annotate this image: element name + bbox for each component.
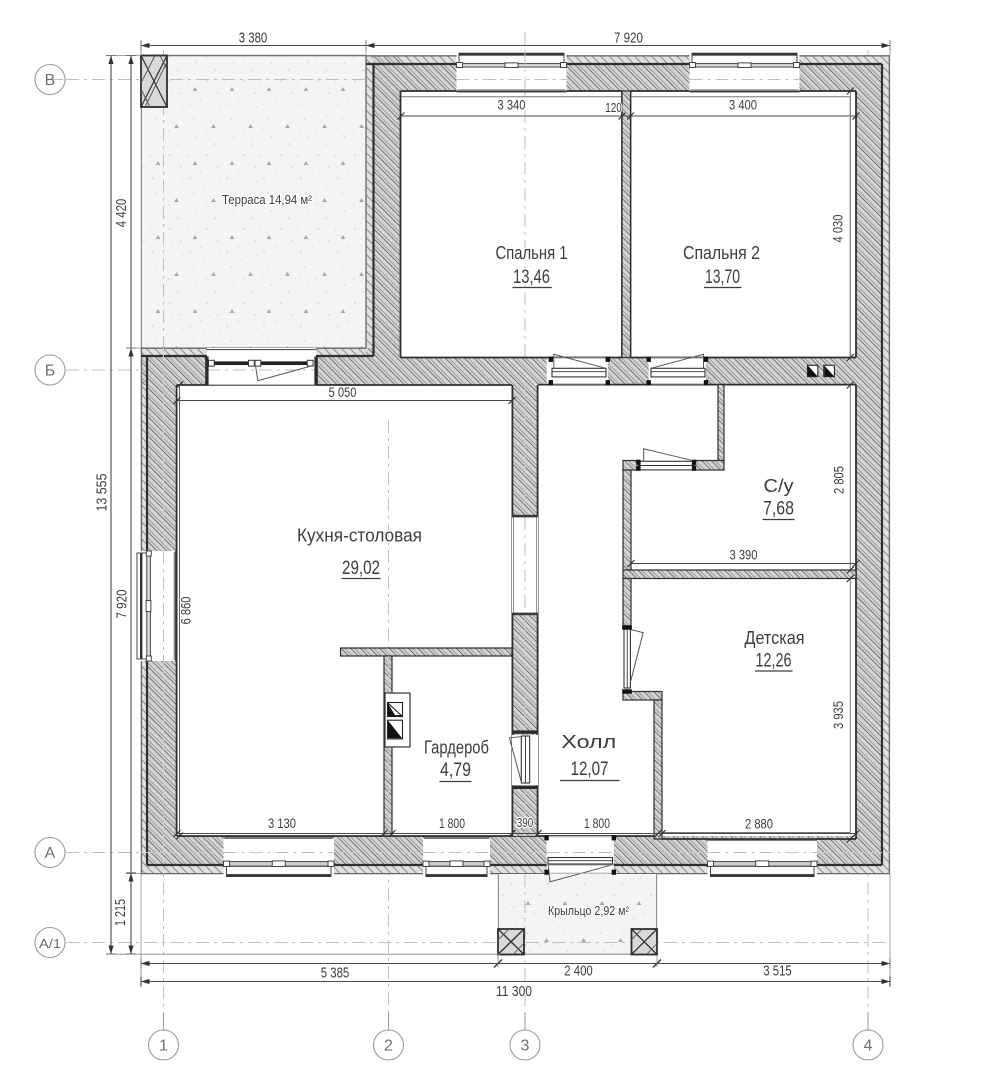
svg-text:4 030: 4 030 — [831, 215, 846, 243]
svg-text:4,79: 4,79 — [440, 760, 471, 781]
svg-text:4: 4 — [864, 1038, 873, 1055]
svg-text:1 215: 1 215 — [113, 899, 129, 926]
svg-text:3 130: 3 130 — [268, 816, 296, 831]
svg-text:12,26: 12,26 — [756, 651, 792, 672]
svg-text:С/у: С/у — [764, 476, 794, 496]
svg-text:11 300: 11 300 — [496, 984, 532, 1000]
svg-text:2 880: 2 880 — [745, 817, 773, 832]
svg-text:7 920: 7 920 — [614, 31, 643, 47]
svg-text:Крыльцо 2,92 м²: Крыльцо 2,92 м² — [548, 903, 630, 918]
svg-text:А: А — [45, 845, 56, 862]
svg-text:390: 390 — [517, 815, 534, 830]
svg-text:Спальня 1: Спальня 1 — [496, 243, 568, 263]
svg-text:3 380: 3 380 — [239, 31, 268, 47]
svg-text:5 050: 5 050 — [329, 385, 357, 400]
svg-text:Кухня-столовая: Кухня-столовая — [297, 526, 422, 546]
svg-text:3 515: 3 515 — [763, 964, 792, 980]
svg-text:3 340: 3 340 — [498, 98, 526, 113]
svg-text:12,07: 12,07 — [571, 759, 609, 780]
svg-text:Холл: Холл — [561, 732, 616, 752]
svg-text:1 800: 1 800 — [584, 816, 610, 831]
svg-text:5 385: 5 385 — [321, 966, 350, 982]
svg-text:Спальня 2: Спальня 2 — [683, 243, 760, 263]
svg-text:2 400: 2 400 — [564, 964, 593, 980]
svg-text:3 390: 3 390 — [730, 548, 758, 563]
svg-text:Гардероб: Гардероб — [424, 738, 489, 758]
svg-text:Терраса 14,94 м²: Терраса 14,94 м² — [222, 192, 313, 207]
svg-text:2 805: 2 805 — [832, 466, 847, 494]
svg-text:А/1: А/1 — [39, 936, 61, 951]
svg-text:6 860: 6 860 — [179, 597, 194, 625]
svg-text:1 800: 1 800 — [439, 816, 465, 831]
svg-text:7 920: 7 920 — [115, 590, 131, 619]
svg-text:7,68: 7,68 — [763, 499, 794, 520]
svg-text:3 935: 3 935 — [831, 701, 846, 729]
svg-text:13 555: 13 555 — [95, 474, 111, 512]
svg-text:2: 2 — [384, 1038, 393, 1055]
svg-text:В: В — [45, 72, 56, 89]
svg-text:13,70: 13,70 — [705, 267, 740, 288]
svg-text:3 400: 3 400 — [729, 98, 757, 113]
svg-text:3: 3 — [521, 1038, 530, 1055]
svg-text:29,02: 29,02 — [342, 558, 380, 579]
svg-text:120: 120 — [605, 100, 622, 115]
svg-text:4 420: 4 420 — [114, 199, 130, 228]
svg-text:Детская: Детская — [745, 628, 805, 648]
svg-text:Б: Б — [45, 363, 56, 380]
svg-text:1: 1 — [159, 1038, 168, 1055]
svg-text:13,46: 13,46 — [513, 267, 550, 288]
